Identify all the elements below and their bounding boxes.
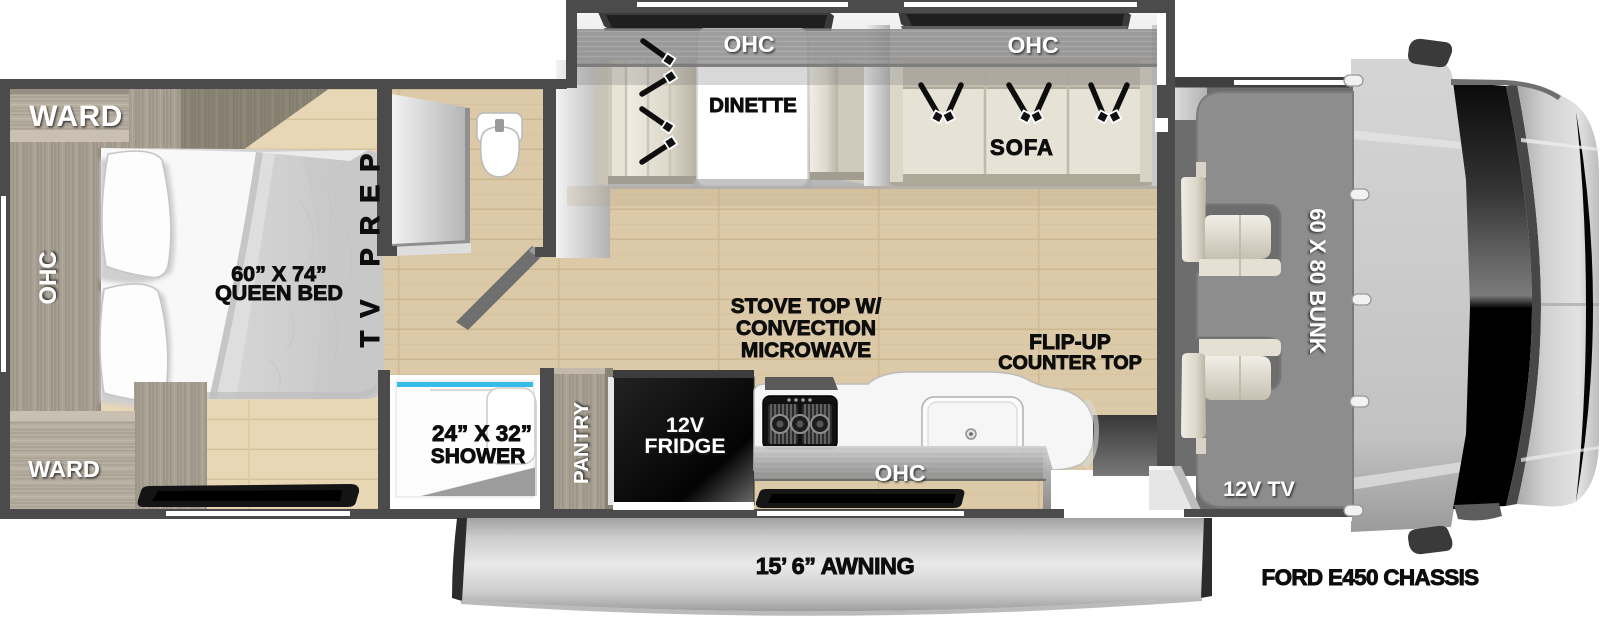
svg-text:SOFA: SOFA xyxy=(990,135,1054,160)
svg-text:MICROWAVE: MICROWAVE xyxy=(741,339,871,362)
svg-text:OHC: OHC xyxy=(874,460,925,486)
svg-text:WARD: WARD xyxy=(28,456,100,482)
svg-text:FLIP-UP: FLIP-UP xyxy=(1029,331,1111,354)
svg-text:SHOWER: SHOWER xyxy=(431,445,526,468)
svg-text:STOVE TOP W/: STOVE TOP W/ xyxy=(731,295,882,318)
svg-text:FORD E450 CHASSIS: FORD E450 CHASSIS xyxy=(1262,565,1480,590)
svg-text:COUNTER TOP: COUNTER TOP xyxy=(998,352,1142,374)
svg-text:TV PREP: TV PREP xyxy=(355,141,385,348)
svg-text:15’ 6” AWNING: 15’ 6” AWNING xyxy=(756,553,914,579)
svg-text:DINETTE: DINETTE xyxy=(709,94,797,117)
svg-text:QUEEN BED: QUEEN BED xyxy=(215,281,343,305)
svg-text:OHC: OHC xyxy=(723,31,774,57)
svg-text:OHC: OHC xyxy=(35,251,62,304)
svg-text:PANTRY: PANTRY xyxy=(570,402,593,484)
svg-text:CONVECTION: CONVECTION xyxy=(736,317,876,340)
svg-text:OHC: OHC xyxy=(1007,32,1058,58)
svg-text:FRIDGE: FRIDGE xyxy=(644,434,725,458)
svg-text:24” X 32”: 24” X 32” xyxy=(432,421,532,446)
svg-text:12V TV: 12V TV xyxy=(1223,477,1295,501)
svg-text:60 X 80 BUNK: 60 X 80 BUNK xyxy=(1305,208,1330,354)
svg-text:WARD: WARD xyxy=(29,100,123,133)
